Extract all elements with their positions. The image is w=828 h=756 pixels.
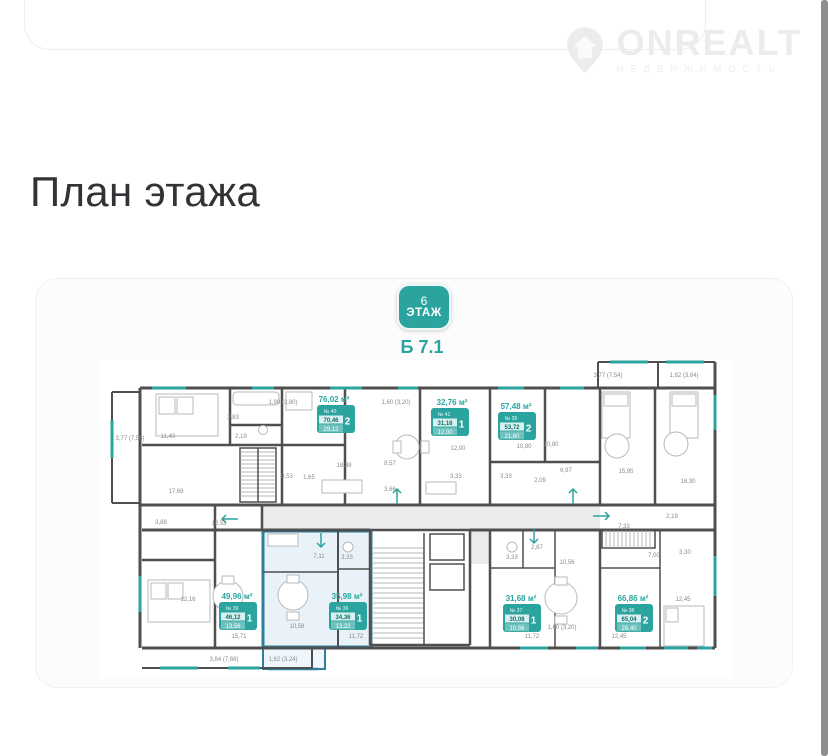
apartment-area2: 70,46 — [323, 418, 339, 424]
apartment-badge-41[interactable]: 32,76 м² № 41 1 31,16 12,00 — [431, 398, 469, 436]
dim: 1,65 — [303, 475, 315, 481]
apartment-number: № 39 — [226, 606, 239, 612]
dim: 11,43 — [161, 434, 176, 440]
dim: 3,30 — [679, 550, 691, 556]
dim: 10,80 — [516, 444, 532, 450]
apartment-area3: 28,40 — [621, 626, 637, 632]
apartment-area2: 34,36 — [335, 615, 351, 621]
apartment-area2: 53,72 — [504, 425, 520, 431]
dim: 10,56 — [559, 560, 575, 566]
dim: 17,69 — [168, 489, 184, 495]
apartment-number: № 41 — [438, 412, 451, 418]
dim: 7,11 — [313, 554, 325, 560]
dim: 3,77 (7,54) — [593, 373, 622, 379]
dim: 3,33 — [500, 474, 512, 480]
dim: 2,87 — [531, 545, 543, 551]
dim: 10,53 — [211, 521, 227, 527]
apartment-badge-39[interactable]: 49,96 м² № 39 1 46,12 13,56 — [219, 592, 257, 630]
dim: 12,16 — [180, 597, 196, 603]
apartment-number: № 40 — [324, 409, 337, 415]
apartment-badge-37[interactable]: 31,68 м² № 37 1 30,08 10,56 — [503, 594, 541, 632]
scrollbar-thumb[interactable] — [821, 0, 828, 756]
dim: 2,19 — [235, 434, 247, 440]
dim: 11,72 — [525, 634, 540, 640]
apartment-badge-38[interactable]: 66,86 м² № 38 2 65,04 28,40 — [615, 594, 653, 632]
dim: 15,95 — [618, 469, 634, 475]
dim: 18,30 — [680, 479, 696, 485]
dim: 3,66 — [384, 487, 396, 493]
apartment-area2: 65,04 — [621, 617, 637, 623]
dim: 12,45 — [675, 597, 691, 603]
apartment-rooms: 1 — [531, 616, 537, 627]
dim: 3,77 (7,56) — [115, 436, 144, 442]
dim: 8,57 — [384, 461, 396, 467]
apartment-area-label: 66,86 м² — [618, 594, 649, 603]
dim: 2,19 — [666, 514, 678, 520]
dim: 3,84 (7,68) — [209, 657, 238, 663]
apartment-area-label: 57,48 м² — [501, 402, 532, 411]
apartment-area-label: 49,96 м² — [222, 592, 253, 601]
apartment-area2: 30,08 — [509, 617, 525, 623]
dim: 1,60 (3,20) — [381, 400, 410, 406]
apartment-area-label: 31,68 м² — [506, 594, 537, 603]
apartment-rooms: 2 — [345, 417, 351, 428]
apartment-area3: 13,22 — [335, 624, 351, 630]
apartment-number: № 37 — [510, 608, 523, 614]
dim: 1,90 (3,80) — [268, 400, 297, 406]
dim: 1,60 (3,20) — [547, 625, 576, 631]
apartment-area2: 46,12 — [225, 615, 241, 621]
apartment-area-label: 76,02 м² — [319, 395, 350, 404]
apartment-rooms: 2 — [526, 424, 532, 435]
dim: 9,53 — [281, 474, 293, 480]
dim: 3,33 — [506, 555, 518, 561]
dim: 7,00 — [648, 553, 660, 559]
apartment-badge-35[interactable]: 57,48 м² № 35 2 53,72 21,60 — [498, 402, 536, 440]
dim: 11,72 — [349, 634, 364, 640]
apartment-number: № 35 — [505, 416, 518, 422]
dim: 12,00 — [450, 446, 466, 452]
dim: 3,33 — [450, 474, 462, 480]
apartment-area-label: 32,76 м² — [437, 398, 468, 407]
apartment-number: № 36 — [336, 606, 349, 612]
apartment-number: № 38 — [622, 608, 635, 614]
dim: 12,45 — [611, 634, 627, 640]
floor-plan: 3,77 (7,56) 11,43 3,83 2,19 1,90 (3,80) … — [0, 0, 828, 756]
dim: 1,62 (3,24) — [268, 657, 297, 663]
dim: 1,82 (3,64) — [669, 373, 698, 379]
apartment-area3: 21,60 — [504, 434, 520, 440]
dim: 15,71 — [231, 634, 247, 640]
apartment-area3: 13,56 — [225, 624, 241, 630]
dim: 3,33 — [341, 555, 353, 561]
dim: 6,97 — [560, 468, 572, 474]
apartment-badge-40[interactable]: 76,02 м² № 40 2 70,46 29,12 — [317, 395, 355, 433]
apartment-rooms: 1 — [459, 420, 465, 431]
apartment-area3: 10,56 — [509, 626, 525, 632]
dim: 10,80 — [543, 442, 559, 448]
dim: 3,83 — [227, 415, 239, 421]
dim: 2,09 — [534, 478, 546, 484]
dim: 7,33 — [618, 524, 630, 530]
apartment-area3: 29,12 — [323, 427, 339, 433]
dim: 18,38 — [336, 463, 352, 469]
dim: 10,58 — [289, 624, 305, 630]
apartment-rooms: 2 — [643, 616, 649, 627]
apartment-rooms: 1 — [247, 614, 253, 625]
apartment-badge-36-selected[interactable]: 35,98 м² № 36 1 34,36 13,22 — [329, 592, 367, 630]
apartment-rooms: 1 — [357, 614, 363, 625]
apartment-area2: 31,16 — [437, 421, 453, 427]
apartment-area-label: 35,98 м² — [332, 592, 363, 601]
dim: 3,88 — [155, 520, 167, 526]
apartment-area3: 12,00 — [437, 430, 453, 436]
